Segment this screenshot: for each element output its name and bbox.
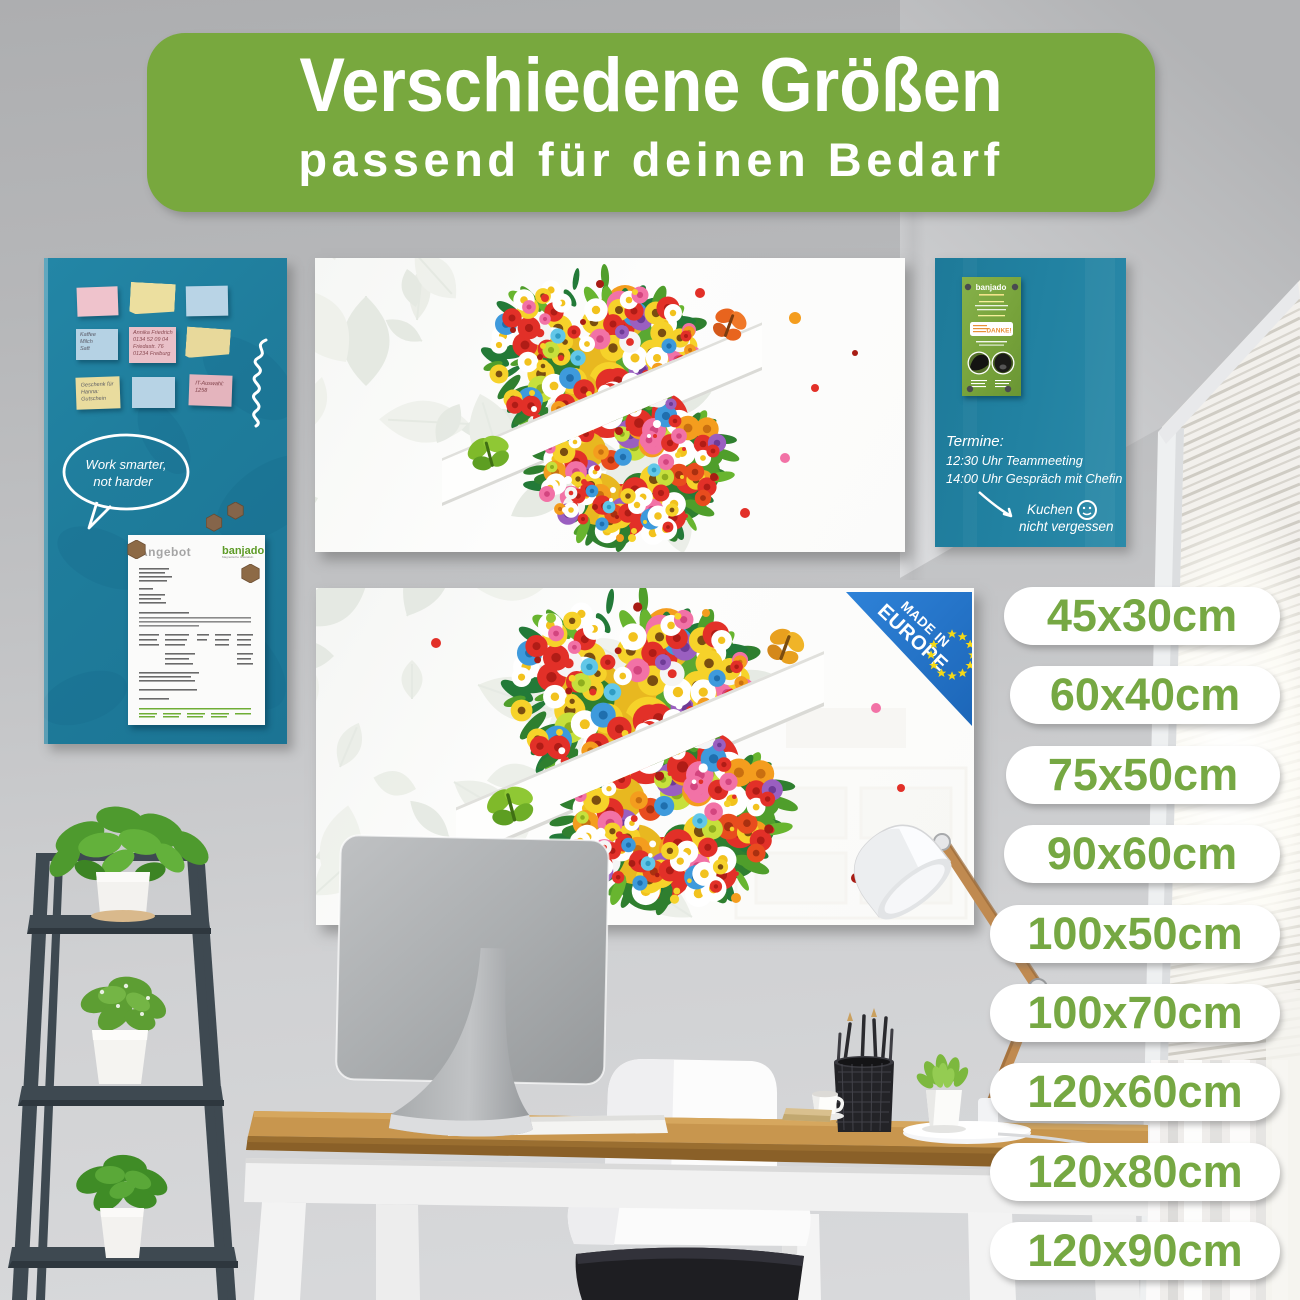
svg-text:banjado: banjado	[976, 283, 1007, 292]
svg-text:nicht vergessen: nicht vergessen	[1019, 519, 1114, 534]
svg-text:12:30 Uhr Teammeeting: 12:30 Uhr Teammeeting	[946, 453, 1083, 468]
svg-text:DANKE!: DANKE!	[986, 328, 1011, 335]
svg-text:14:00 Uhr Gespräch mit Chefin: 14:00 Uhr Gespräch mit Chefin	[946, 471, 1122, 486]
svg-text:Work smarter,: Work smarter,	[86, 457, 167, 472]
svg-text:not harder: not harder	[93, 474, 153, 489]
svg-text:Termine:: Termine:	[946, 433, 1004, 450]
svg-text:Kuchen: Kuchen	[1027, 502, 1073, 517]
